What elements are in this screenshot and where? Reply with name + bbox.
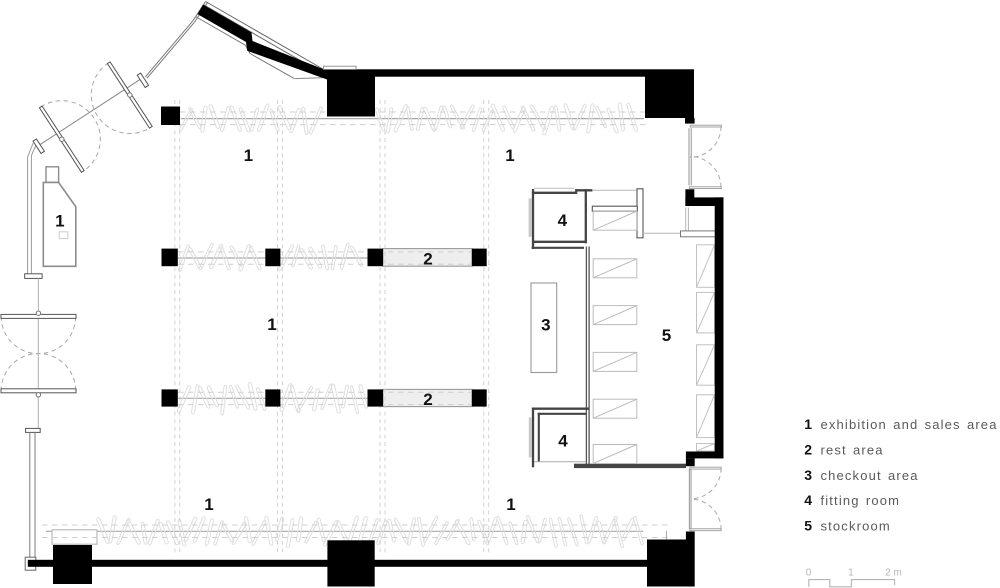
svg-text:1: 1 — [267, 315, 276, 334]
svg-text:4: 4 — [558, 432, 568, 451]
svg-text:1: 1 — [848, 568, 854, 579]
svg-text:1: 1 — [505, 146, 514, 165]
svg-text:0: 0 — [806, 568, 812, 579]
svg-text:3: 3 — [541, 316, 550, 335]
svg-text:2: 2 — [423, 250, 432, 269]
svg-text:stockroom: stockroom — [821, 519, 891, 534]
svg-text:checkout area: checkout area — [821, 468, 919, 483]
svg-text:1: 1 — [506, 495, 515, 514]
svg-text:2 m: 2 m — [885, 568, 902, 579]
svg-text:5: 5 — [662, 326, 671, 345]
svg-text:1: 1 — [244, 146, 253, 165]
svg-text:1: 1 — [804, 416, 812, 432]
svg-text:5: 5 — [804, 518, 812, 534]
svg-text:rest area: rest area — [821, 442, 884, 457]
svg-text:1: 1 — [55, 212, 64, 231]
svg-text:fitting room: fitting room — [821, 493, 901, 508]
svg-text:2: 2 — [423, 390, 432, 409]
svg-text:3: 3 — [804, 467, 812, 483]
svg-text:1: 1 — [204, 495, 213, 514]
svg-text:4: 4 — [558, 211, 568, 230]
svg-text:2: 2 — [804, 441, 812, 457]
svg-text:exhibition and sales area: exhibition and sales area — [821, 417, 998, 432]
svg-text:4: 4 — [804, 492, 812, 508]
